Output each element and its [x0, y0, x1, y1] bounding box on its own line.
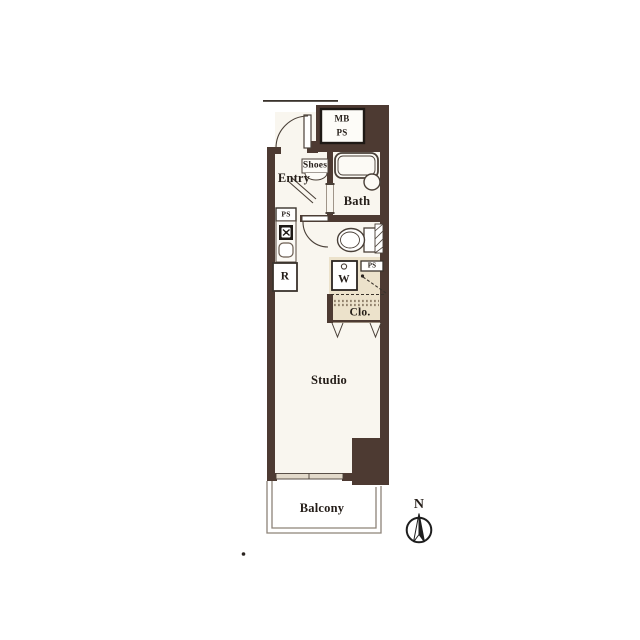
closet-label: Clo. — [350, 307, 371, 319]
wall-corner-notch — [352, 438, 389, 485]
meter-ps-label: PS — [337, 129, 348, 138]
compass-icon — [407, 514, 432, 543]
top-border-line — [263, 100, 338, 102]
stove-icon — [279, 225, 293, 240]
entry-door-leaf-icon — [304, 115, 311, 148]
wall-left — [267, 147, 275, 481]
upper-ps-label: PS — [368, 263, 377, 270]
balcony-label: Balcony — [300, 502, 344, 515]
balcony-window-icon — [276, 474, 343, 480]
compass-north-label: N — [414, 498, 424, 512]
bath-door-icon — [326, 183, 335, 214]
floor-plan: MB PS Entry Shoes Bath PS R W PS Clo. St… — [0, 0, 640, 640]
sink-icon — [279, 243, 293, 257]
washbasin-icon — [364, 174, 380, 190]
entry-label: Entry — [278, 172, 310, 185]
washer-tap-icon — [341, 264, 346, 269]
wall-closet-front — [327, 320, 386, 323]
kitchen-ps-label: PS — [281, 210, 290, 218]
bath-label: Bath — [344, 195, 371, 208]
shoes-label: Shoes — [303, 161, 327, 171]
wall-entry-stub — [267, 147, 281, 154]
meter-box-label: MB — [335, 115, 350, 124]
wall-closet-left — [327, 294, 333, 323]
washer-label: W — [338, 274, 350, 286]
wall-right — [380, 152, 389, 485]
duct-hatch-icon — [375, 224, 383, 253]
refrigerator-label: R — [281, 271, 290, 283]
floor-plan-drawing — [0, 0, 640, 640]
wall-bottom-left — [267, 473, 277, 481]
dot-mark — [242, 552, 246, 556]
toilet-door-leaf-icon — [302, 216, 328, 221]
studio-label: Studio — [311, 374, 347, 387]
